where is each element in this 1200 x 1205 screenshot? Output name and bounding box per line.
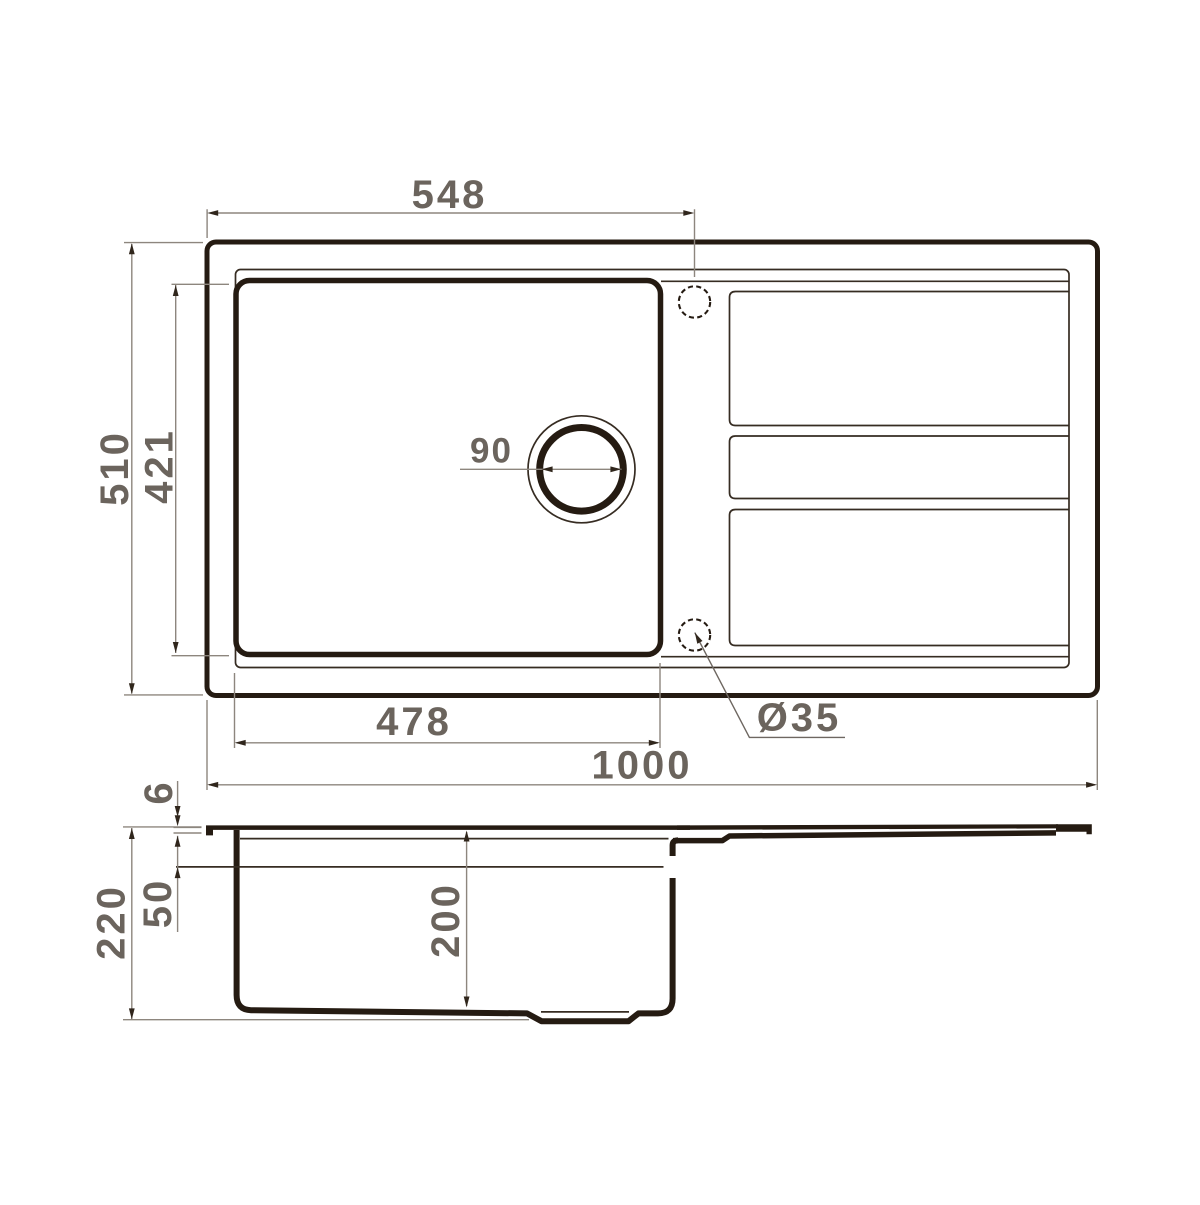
svg-text:220: 220: [90, 884, 134, 960]
svg-text:510: 510: [93, 430, 137, 506]
svg-text:Ø35: Ø35: [757, 696, 842, 740]
svg-text:200: 200: [424, 882, 468, 958]
svg-text:6: 6: [137, 779, 181, 804]
svg-text:50: 50: [136, 878, 180, 929]
svg-text:90: 90: [470, 432, 513, 471]
svg-text:548: 548: [412, 173, 488, 217]
svg-text:478: 478: [376, 700, 452, 744]
svg-text:421: 421: [138, 428, 182, 504]
svg-text:1000: 1000: [592, 744, 693, 788]
